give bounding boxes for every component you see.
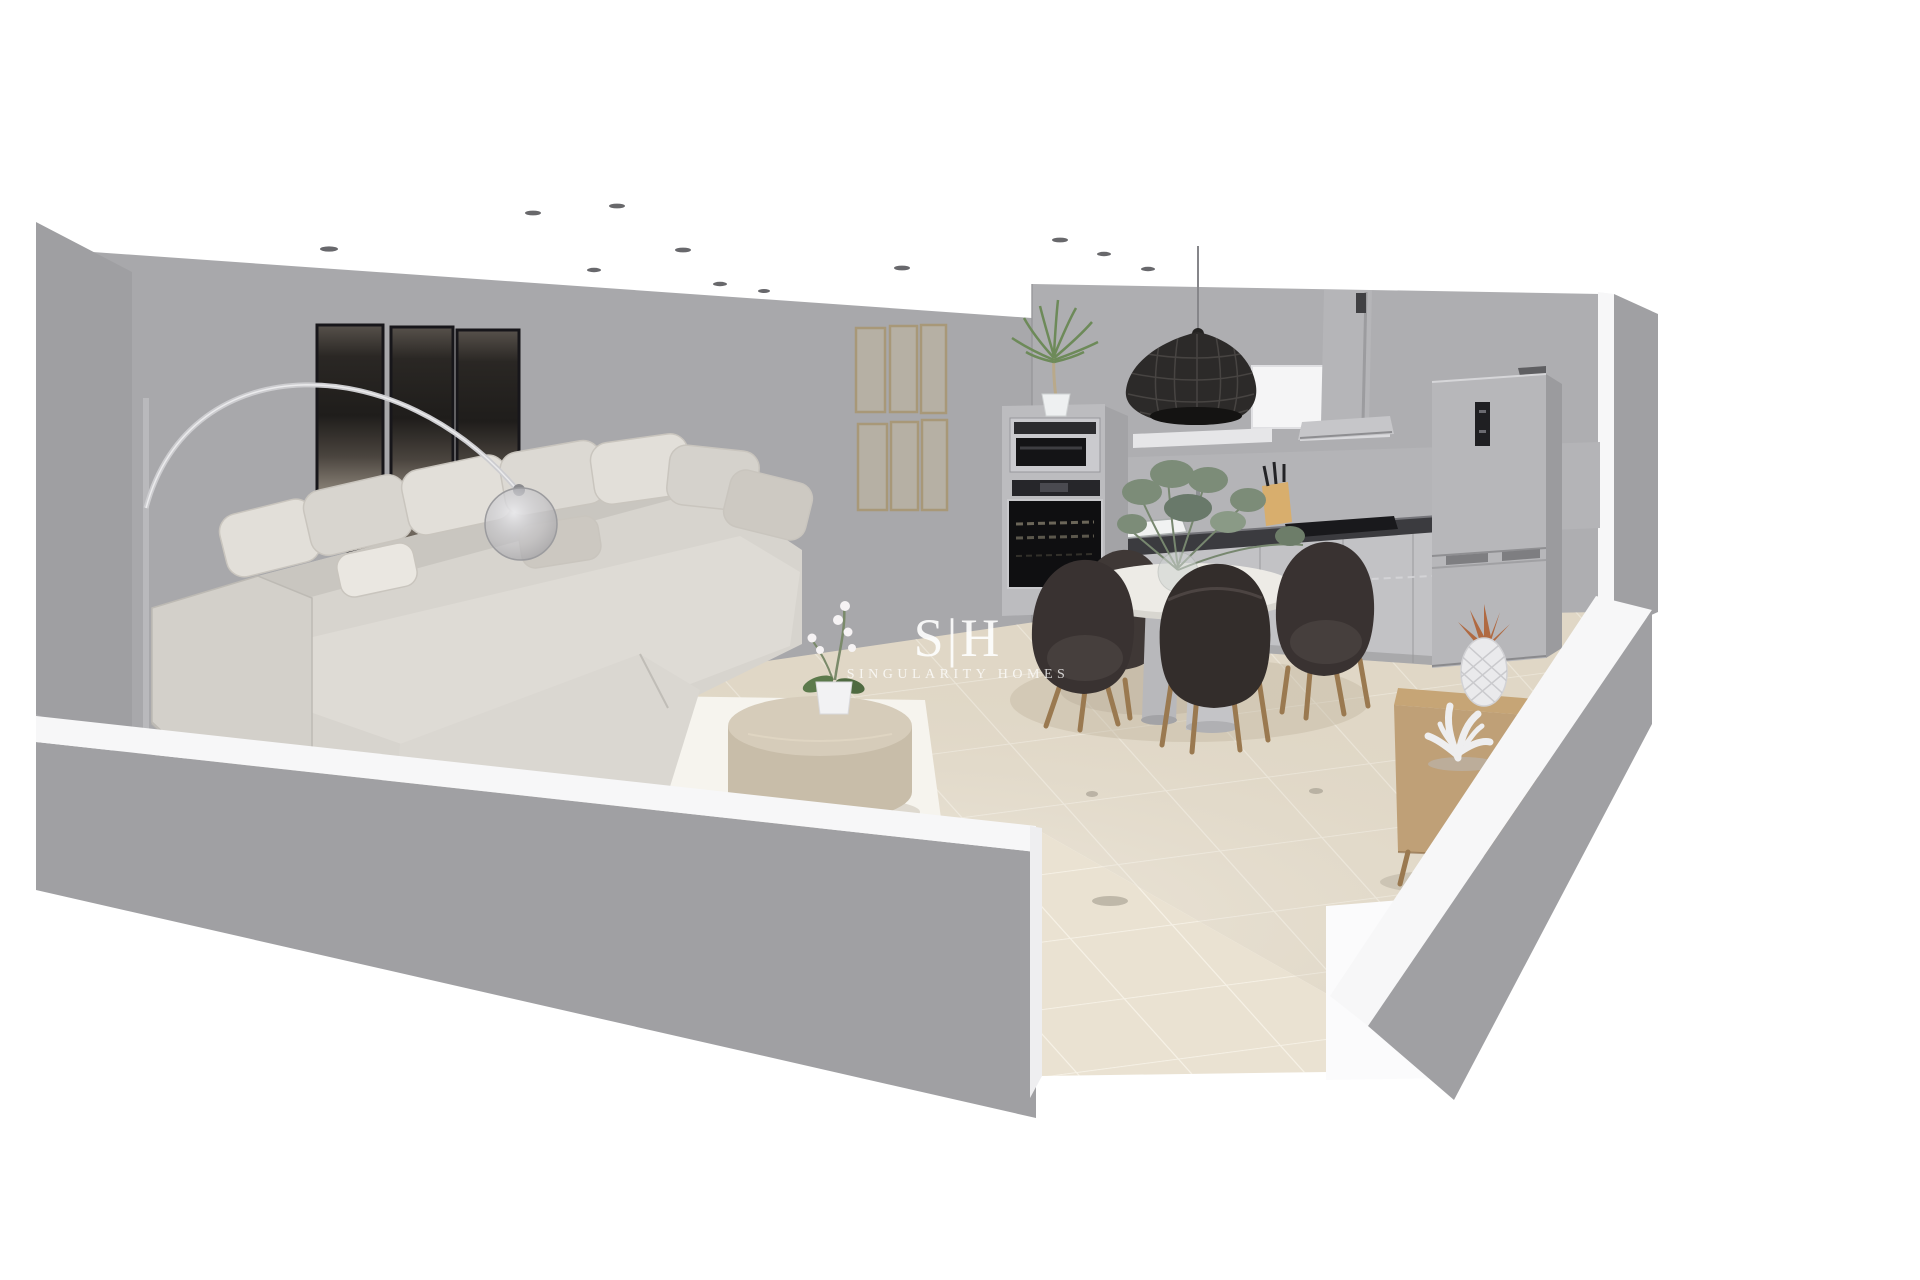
watermark-logo: S|H: [914, 608, 1003, 668]
orchid-pot: [816, 682, 852, 714]
knife-block: [1262, 482, 1292, 526]
render-canvas: S|H SINGULARITY HOMES: [0, 0, 1920, 1280]
lamp-glass-shade: [485, 488, 557, 560]
fridge-display: [1475, 402, 1490, 446]
right-wall-exterior: [1614, 294, 1658, 632]
fridge-freezer: [1432, 366, 1562, 668]
3d-home-render: S|H SINGULARITY HOMES: [0, 0, 1920, 1280]
left-wall: [36, 222, 132, 757]
right-wall-cut-edge: [1598, 292, 1614, 634]
watermark-company: SINGULARITY HOMES: [847, 667, 1070, 682]
doorway-cut-edge: [1030, 826, 1042, 1098]
